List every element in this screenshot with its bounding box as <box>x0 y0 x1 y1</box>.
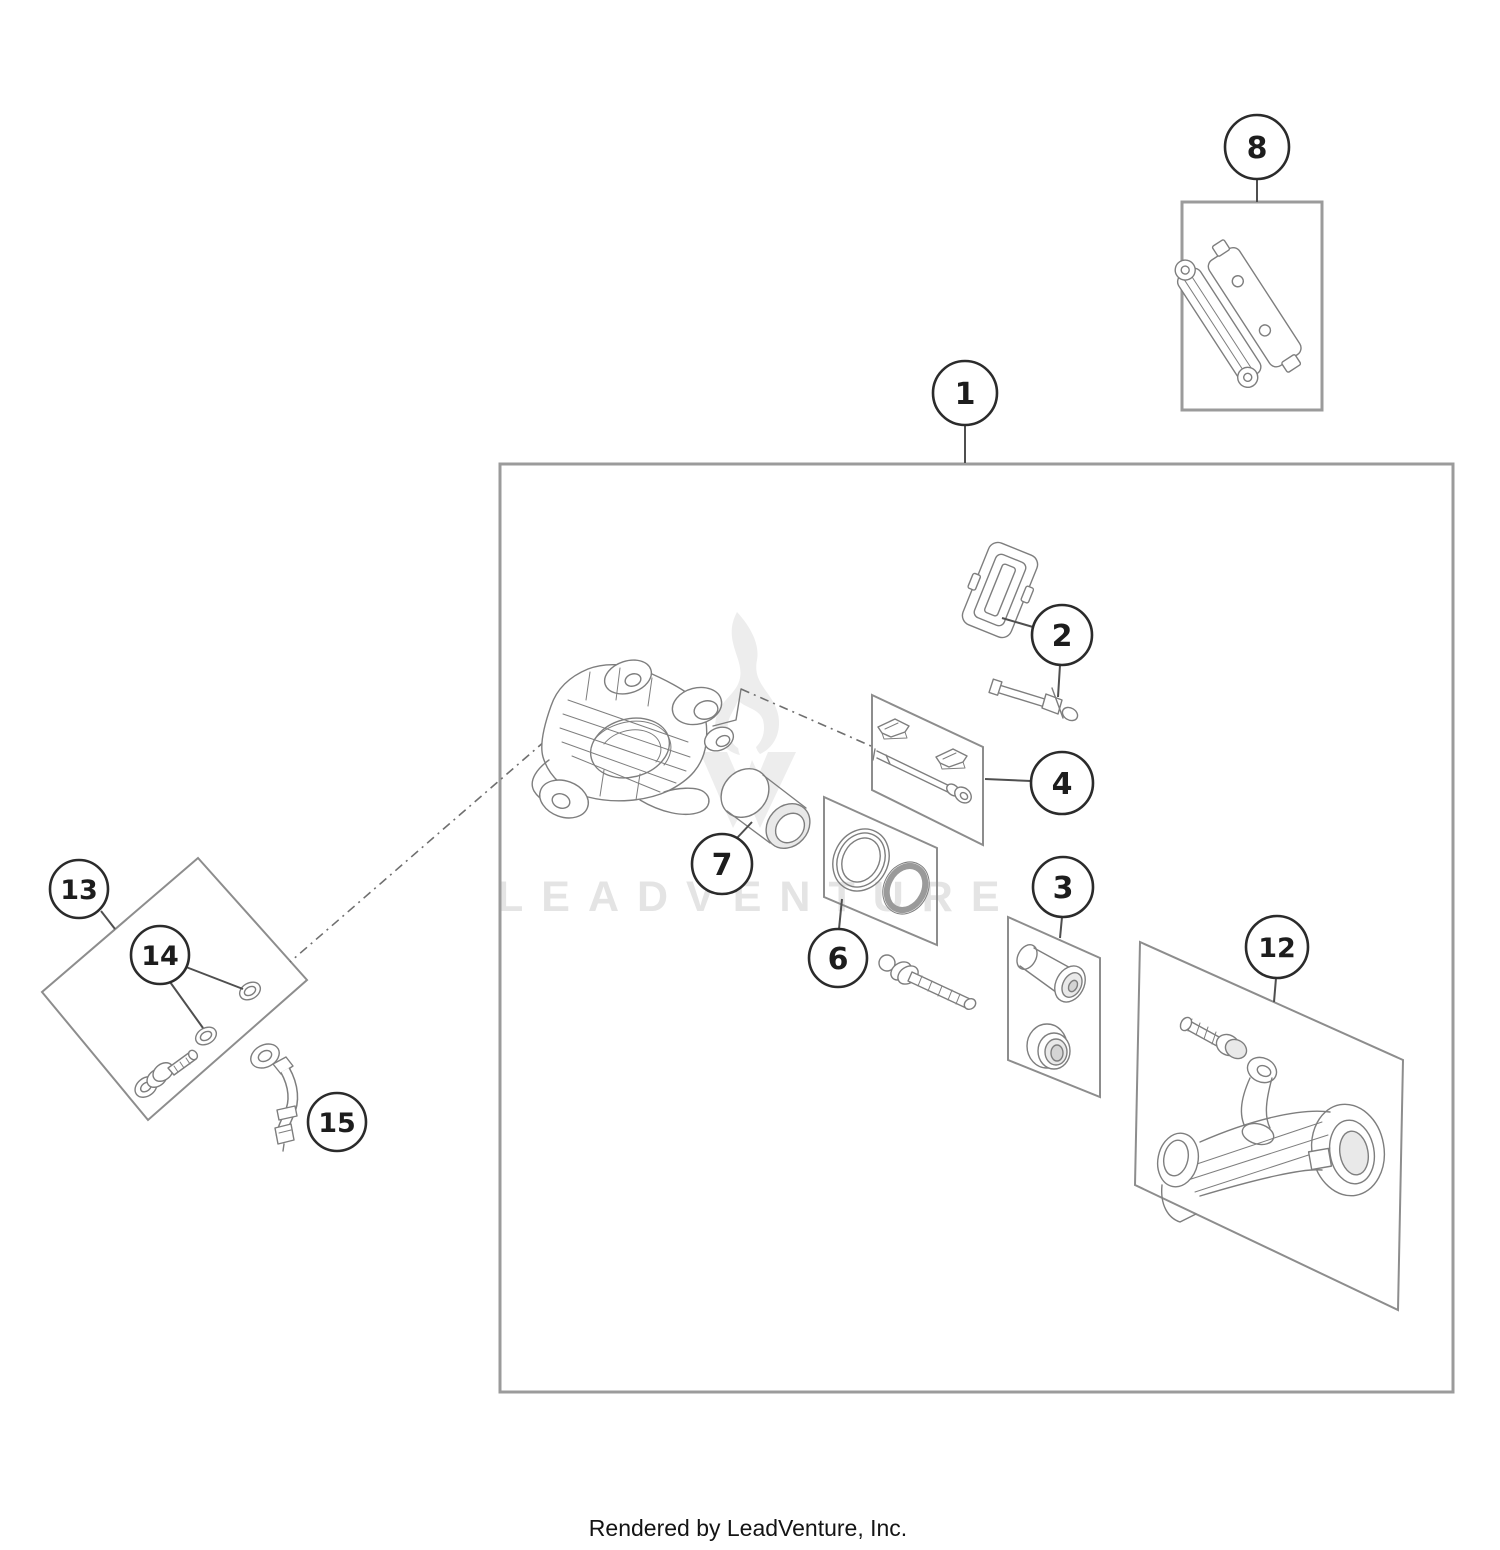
footer-text: Rendered by LeadVenture, Inc. <box>589 1515 907 1541</box>
watermark-text: LEADVENTURE <box>497 873 1018 921</box>
brake-hose-drawing <box>247 1039 297 1151</box>
pad-pin-drawing <box>989 679 1080 723</box>
callout-4[interactable]: 4 <box>985 752 1093 814</box>
callout-15[interactable]: 15 <box>308 1093 366 1151</box>
bracket-kit-drawing <box>1153 1015 1392 1222</box>
guide-bolt-drawing <box>879 955 978 1012</box>
callout-label: 12 <box>1258 933 1296 964</box>
callout-label: 1 <box>955 377 976 412</box>
callout-label: 8 <box>1247 131 1268 166</box>
callout-12[interactable]: 12 <box>1246 916 1308 1002</box>
leader-line-hose-to-caliper <box>290 741 545 962</box>
caliper-body-drawing <box>532 654 737 824</box>
callout-label: 13 <box>60 875 98 906</box>
bushing-kit-box <box>1008 917 1100 1097</box>
callout-label: 2 <box>1052 619 1073 654</box>
callout-7[interactable]: 7 <box>692 822 752 894</box>
sealing-washer-a <box>236 979 263 1004</box>
brake-pads-drawing <box>1166 231 1309 398</box>
callout-1[interactable]: 1 <box>933 361 997 463</box>
callout-label: 3 <box>1053 871 1074 906</box>
callout-label: 15 <box>318 1108 356 1139</box>
banjo-bolt-drawing <box>131 1049 199 1102</box>
callout-label: 6 <box>828 942 849 977</box>
pin-kit-box <box>872 695 983 845</box>
callouts: 1 2 3 4 6 7 8 <box>50 115 1308 1151</box>
callout-label: 7 <box>712 848 733 883</box>
callout-14[interactable]: 14 <box>131 926 243 1028</box>
callout-3[interactable]: 3 <box>1033 857 1093 938</box>
sealing-washer-b <box>192 1024 219 1049</box>
callout-label: 4 <box>1052 767 1073 802</box>
callout-13[interactable]: 13 <box>50 860 115 929</box>
pin-kit-drawing <box>873 719 974 806</box>
callout-label: 14 <box>141 941 179 972</box>
callout-8[interactable]: 8 <box>1225 115 1289 202</box>
bushing-kit-drawing <box>1013 941 1091 1069</box>
